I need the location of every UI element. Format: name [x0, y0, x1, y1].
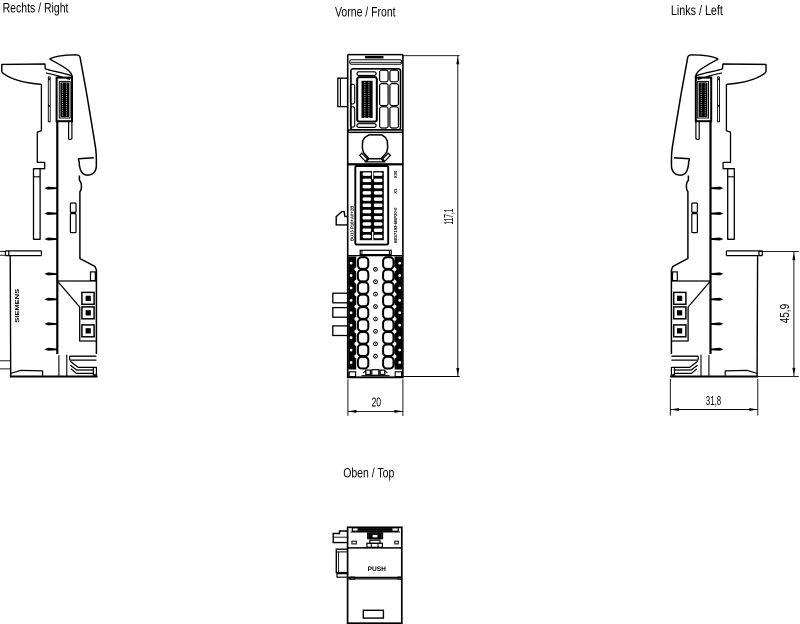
svg-text:20: 20: [371, 396, 381, 410]
svg-text:X30: X30: [393, 170, 398, 178]
svg-text:45,9: 45,9: [779, 304, 792, 323]
svg-text:Links / Left: Links / Left: [671, 3, 723, 19]
svg-text:Oben / Top: Oben / Top: [343, 465, 394, 481]
svg-text:SIEMENS: SIEMENS: [15, 288, 21, 323]
svg-text:Vorne / Front: Vorne / Front: [335, 4, 396, 20]
svg-text:Rechts / Right: Rechts / Right: [3, 0, 69, 16]
svg-text:BU15 P16+A0+2B: BU15 P16+A0+2B: [349, 205, 354, 241]
svg-text:X1: X1: [393, 188, 398, 194]
svg-text:6ES7193-6BP20-0: 6ES7193-6BP20-0: [393, 207, 398, 243]
svg-text:PUSH: PUSH: [368, 566, 387, 573]
svg-text:31,8: 31,8: [706, 394, 721, 408]
svg-text:117,1: 117,1: [443, 208, 457, 224]
